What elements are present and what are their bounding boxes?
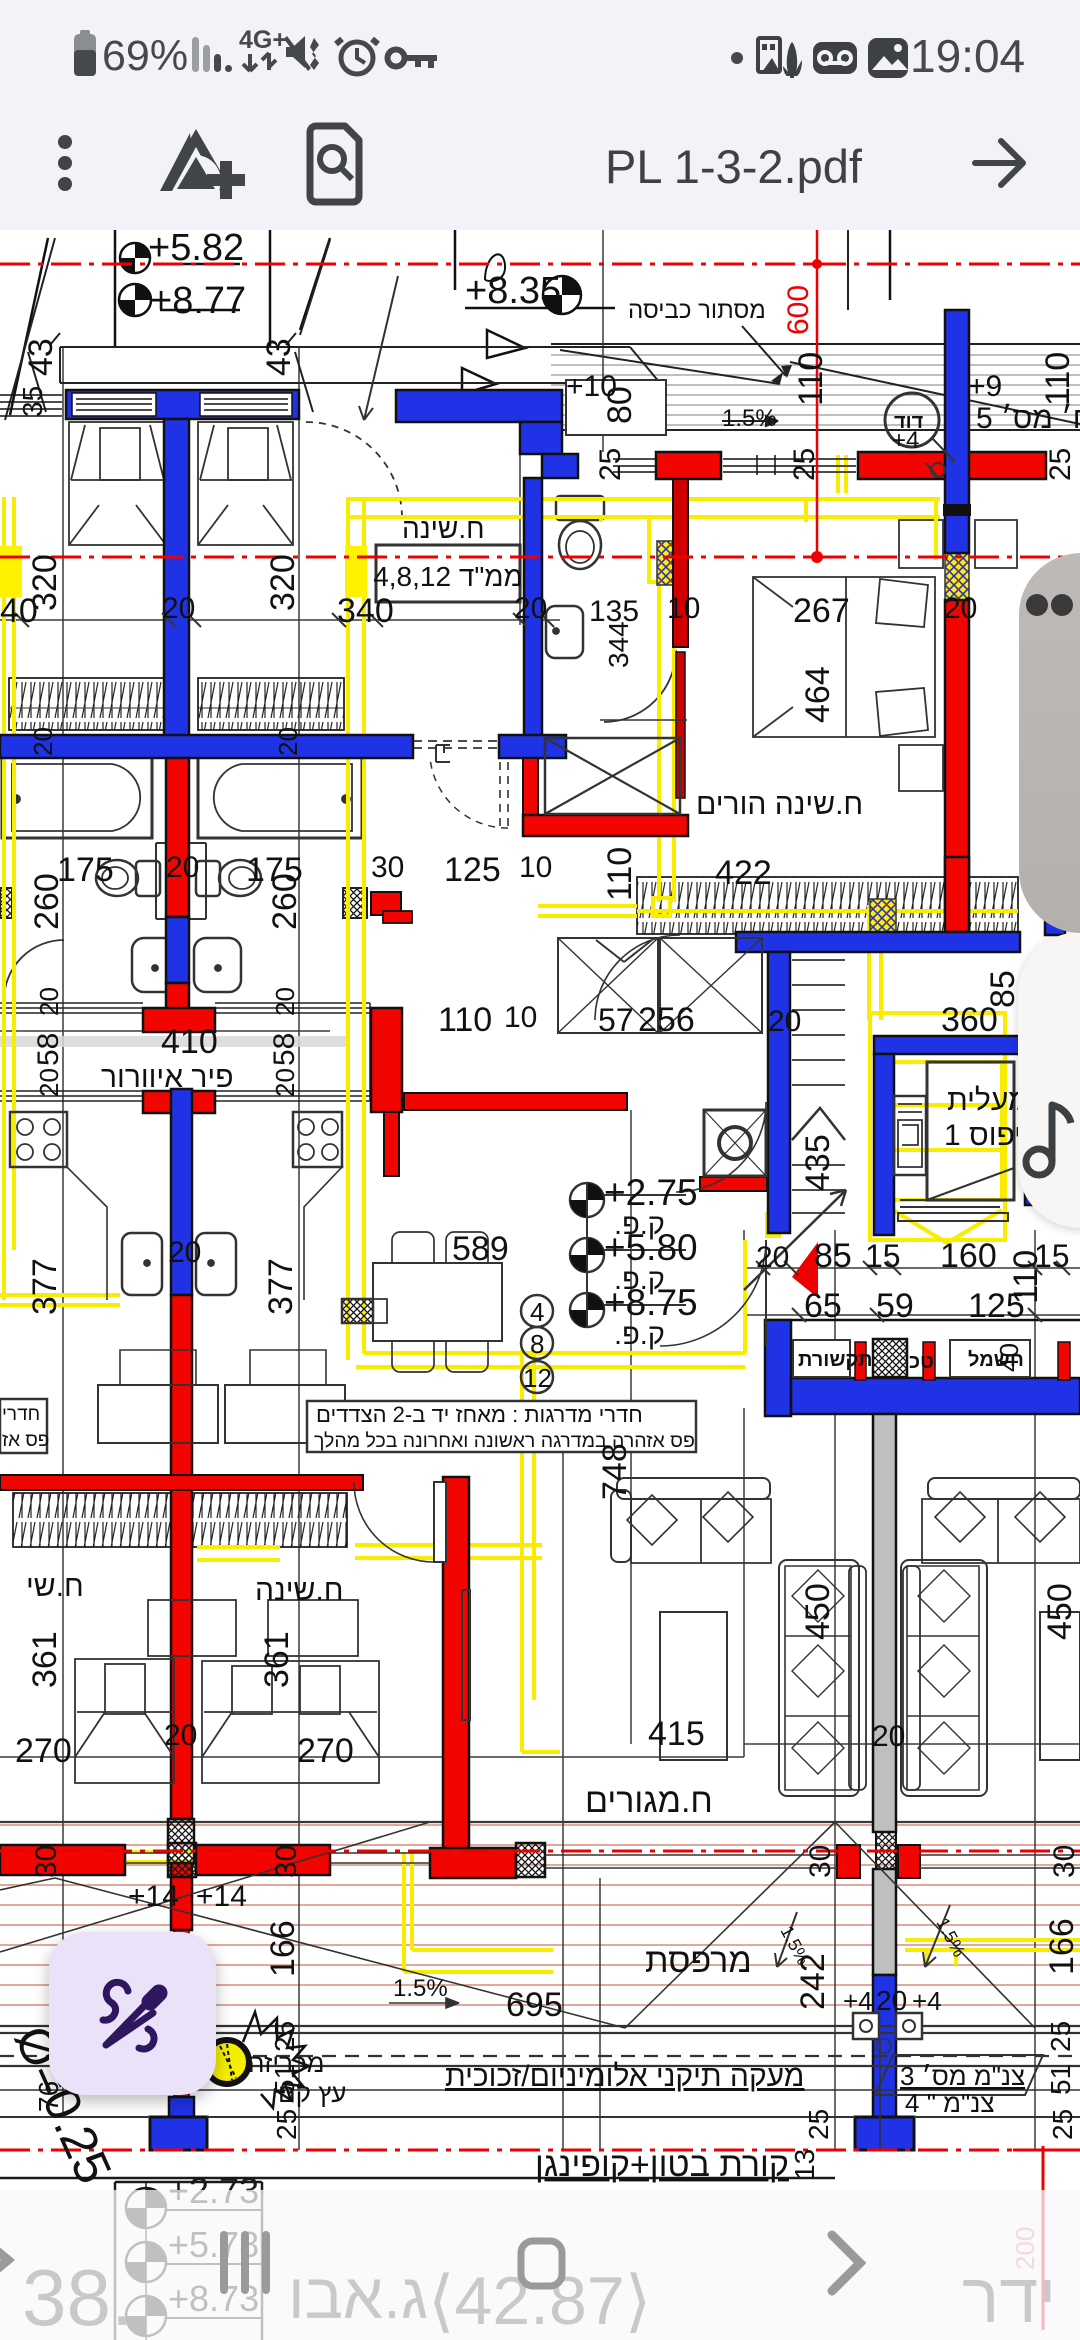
svg-text:65: 65 xyxy=(804,1287,842,1325)
svg-text:110: 110 xyxy=(601,847,639,901)
svg-text:מכריזה: מכריזה xyxy=(248,2048,325,2078)
svg-text:43: 43 xyxy=(260,338,298,376)
svg-text:20: 20 xyxy=(273,727,303,756)
svg-text:51: 51 xyxy=(1045,2064,1076,2095)
svg-text:פס אזהרה במדרגה ראשונה ואחרונה: פס אזהרה במדרגה ראשונה ואחרונה בכל מהלך xyxy=(314,1430,695,1452)
svg-text:40: 40 xyxy=(994,1343,1024,1372)
svg-text:+8.77: +8.77 xyxy=(150,280,246,322)
svg-text:4: 4 xyxy=(530,1297,544,1327)
svg-text:מעלית: מעלית xyxy=(947,1084,1029,1117)
svg-text:+4: +4 xyxy=(892,427,919,454)
svg-text:ח.שינה הורים: ח.שינה הורים xyxy=(696,788,863,821)
svg-text:464: 464 xyxy=(799,666,837,723)
svg-text:+14: +14 xyxy=(196,1880,247,1913)
svg-text:1.5%: 1.5% xyxy=(393,1975,448,2002)
svg-text:125: 125 xyxy=(444,851,501,889)
svg-text:מסתור כביסה: מסתור כביסה xyxy=(628,297,766,324)
svg-text:20: 20 xyxy=(514,592,547,625)
svg-text:צנ"מ מס׳ 3: צנ"מ מס׳ 3 xyxy=(900,2061,1025,2091)
svg-text:320: 320 xyxy=(264,554,302,611)
svg-text:20: 20 xyxy=(34,987,64,1016)
svg-text:+4: +4 xyxy=(843,1986,873,2016)
svg-text:57: 57 xyxy=(598,1002,634,1038)
svg-text:8: 8 xyxy=(530,1329,544,1359)
svg-text:377: 377 xyxy=(262,1258,300,1315)
svg-text:+2.75: +2.75 xyxy=(604,1172,698,1213)
svg-text:ממ"ד 4,8,12: ממ"ד 4,8,12 xyxy=(373,561,523,592)
svg-text:695: 695 xyxy=(506,1986,563,2024)
svg-text:ח.מגורים: ח.מגורים xyxy=(585,1782,713,1820)
svg-text:10: 10 xyxy=(667,592,700,625)
svg-text:110: 110 xyxy=(1039,352,1077,406)
svg-text:+9: +9 xyxy=(968,370,1002,403)
svg-text:+10: +10 xyxy=(566,370,617,403)
svg-text:377: 377 xyxy=(26,1258,64,1315)
svg-text:166: 166 xyxy=(1043,1918,1080,1975)
svg-text:.ק.פ: .ק.פ xyxy=(614,1319,665,1351)
svg-text:10: 10 xyxy=(519,851,552,884)
svg-text:110: 110 xyxy=(438,1001,492,1039)
svg-text:450: 450 xyxy=(799,1583,837,1640)
svg-text:ח׳ מס׳ 5: ח׳ מס׳ 5 xyxy=(976,402,1080,435)
svg-text:פס אז: פס אז xyxy=(2,1430,49,1451)
svg-text:20: 20 xyxy=(28,727,58,756)
svg-text:+14: +14 xyxy=(128,1880,179,1913)
svg-text:69%: 69% xyxy=(102,32,188,80)
svg-text:13: 13 xyxy=(789,2149,820,2180)
svg-text:410: 410 xyxy=(161,1023,218,1061)
svg-text:20: 20 xyxy=(168,1236,201,1269)
svg-text:110: 110 xyxy=(792,352,830,406)
svg-text:12: 12 xyxy=(523,1363,552,1393)
svg-text:415: 415 xyxy=(648,1715,705,1753)
svg-text:ח.שינה: ח.שינה xyxy=(402,513,485,544)
svg-text:125: 125 xyxy=(968,1287,1025,1325)
svg-text:15: 15 xyxy=(1034,1238,1070,1274)
svg-text:175: 175 xyxy=(246,851,303,889)
svg-text:30: 30 xyxy=(30,1845,63,1878)
svg-text:435: 435 xyxy=(799,1134,837,1191)
svg-text:תקשורת: תקשורת xyxy=(798,1349,872,1371)
svg-text:85: 85 xyxy=(814,1237,852,1275)
svg-text:58: 58 xyxy=(268,1033,301,1066)
svg-text:פיר איוורור: פיר איוורור xyxy=(101,1061,234,1094)
svg-text:20: 20 xyxy=(164,1719,197,1752)
svg-text:25: 25 xyxy=(1045,2021,1076,2052)
svg-text:+4: +4 xyxy=(912,1986,942,2016)
svg-text:43: 43 xyxy=(22,338,60,376)
svg-text:160: 160 xyxy=(940,1237,997,1275)
svg-text:58: 58 xyxy=(32,1033,65,1066)
svg-text:25: 25 xyxy=(803,2109,834,2140)
svg-text:קורת בטון+קופינגן: קורת בטון+קופינגן xyxy=(535,2146,789,2184)
svg-text:חדרי מדרגות : מאחז יד ב-2 הצדד: חדרי מדרגות : מאחז יד ב-2 הצדדים xyxy=(316,1402,643,1427)
svg-text:30: 30 xyxy=(804,1845,837,1878)
svg-text:4G+: 4G+ xyxy=(239,26,287,54)
svg-text:20: 20 xyxy=(944,592,977,625)
svg-text:256: 256 xyxy=(638,1001,695,1039)
svg-text:20: 20 xyxy=(876,1985,907,2016)
svg-text:10: 10 xyxy=(504,1001,537,1034)
svg-text:175: 175 xyxy=(57,851,114,889)
svg-text:19:04: 19:04 xyxy=(910,30,1025,82)
svg-text:600: 600 xyxy=(782,285,815,335)
svg-text:20: 20 xyxy=(166,851,199,884)
svg-text:+8.75: +8.75 xyxy=(604,1282,698,1323)
svg-text:20: 20 xyxy=(270,1068,300,1097)
svg-text:1.5%: 1.5% xyxy=(722,405,777,432)
svg-text:270: 270 xyxy=(15,1732,72,1770)
svg-text:25: 25 xyxy=(594,448,627,481)
svg-text:25: 25 xyxy=(271,2109,302,2140)
svg-text:+5.80: +5.80 xyxy=(604,1227,698,1268)
svg-text:270: 270 xyxy=(297,1732,354,1770)
svg-text:PL 1-3-2.pdf: PL 1-3-2.pdf xyxy=(605,140,863,193)
svg-text:20: 20 xyxy=(756,1241,789,1274)
svg-text:מרפסת: מרפסת xyxy=(645,1942,752,1980)
svg-text:35: 35 xyxy=(17,386,48,417)
svg-text:30: 30 xyxy=(270,1845,303,1878)
svg-text:361: 361 xyxy=(258,1631,296,1688)
svg-text:450: 450 xyxy=(1041,1583,1079,1640)
svg-text:40: 40 xyxy=(0,592,38,630)
svg-text:267: 267 xyxy=(793,592,850,630)
svg-text:340: 340 xyxy=(337,592,394,630)
svg-text:חדרי: חדרי xyxy=(2,1404,40,1425)
svg-text:15: 15 xyxy=(865,1238,901,1274)
svg-text:צנ"מ " 4: צנ"מ " 4 xyxy=(905,2088,995,2118)
svg-text:135: 135 xyxy=(589,595,639,628)
svg-text:25: 25 xyxy=(788,448,821,481)
svg-text:20: 20 xyxy=(162,592,195,625)
svg-text:20: 20 xyxy=(872,1720,905,1753)
svg-text:589: 589 xyxy=(452,1230,509,1268)
svg-text:עץ קם: עץ קם xyxy=(278,2078,346,2108)
svg-text:20: 20 xyxy=(270,987,300,1016)
svg-text:25: 25 xyxy=(1044,448,1077,481)
svg-text:מעקה תיקני אלומיניום/זכוכית: מעקה תיקני אלומיניום/זכוכית xyxy=(445,2060,804,2093)
svg-text:30: 30 xyxy=(1048,1845,1080,1878)
svg-text:361: 361 xyxy=(26,1631,64,1688)
svg-text:344: 344 xyxy=(603,621,634,668)
svg-text:טכ: טכ xyxy=(909,1351,934,1373)
svg-text:422: 422 xyxy=(715,854,772,892)
svg-text:30: 30 xyxy=(371,851,404,884)
svg-text:ח.שי: ח.שי xyxy=(26,1570,84,1603)
svg-text:360: 360 xyxy=(941,1001,998,1039)
svg-text:ח.שינה: ח.שינה xyxy=(255,1574,343,1607)
svg-text:166: 166 xyxy=(264,1920,302,1977)
svg-text:20: 20 xyxy=(768,1005,801,1038)
svg-text:25: 25 xyxy=(1047,2109,1078,2140)
svg-text:20: 20 xyxy=(34,1068,64,1097)
svg-text:59: 59 xyxy=(876,1287,914,1325)
svg-text:+8.35: +8.35 xyxy=(465,270,561,312)
